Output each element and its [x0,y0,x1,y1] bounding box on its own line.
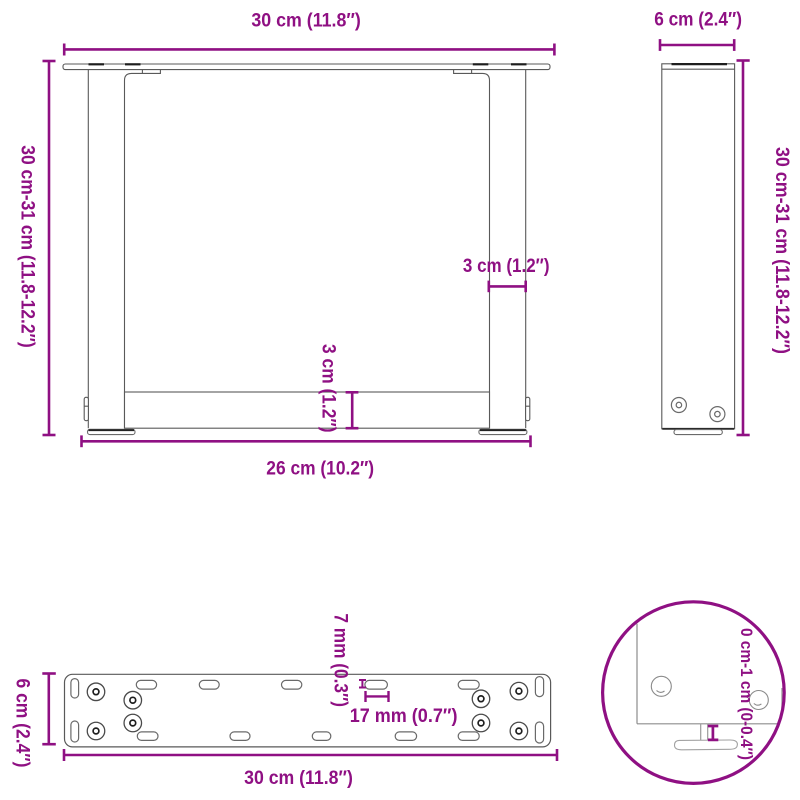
svg-text:3 cm (1.2″): 3 cm (1.2″) [318,344,339,433]
svg-text:26 cm (10.2″): 26 cm (10.2″) [266,459,374,480]
svg-text:0 cm-1 cm (0-0.4″): 0 cm-1 cm (0-0.4″) [737,628,755,760]
svg-text:17 mm (0.7″): 17 mm (0.7″) [350,706,458,727]
svg-text:30 cm (11.8″): 30 cm (11.8″) [244,768,353,789]
svg-text:6 cm (2.4″): 6 cm (2.4″) [12,679,33,768]
svg-text:6 cm (2.4″): 6 cm (2.4″) [654,9,742,30]
svg-text:7 mm (0.3″): 7 mm (0.3″) [330,613,351,707]
svg-text:30 cm (11.8″): 30 cm (11.8″) [251,10,360,31]
svg-text:30 cm-31 cm (11.8-12.2″): 30 cm-31 cm (11.8-12.2″) [17,145,38,348]
svg-text:30 cm-31 cm (11.8-12.2″): 30 cm-31 cm (11.8-12.2″) [771,147,792,354]
svg-text:3 cm (1.2″): 3 cm (1.2″) [463,256,550,277]
